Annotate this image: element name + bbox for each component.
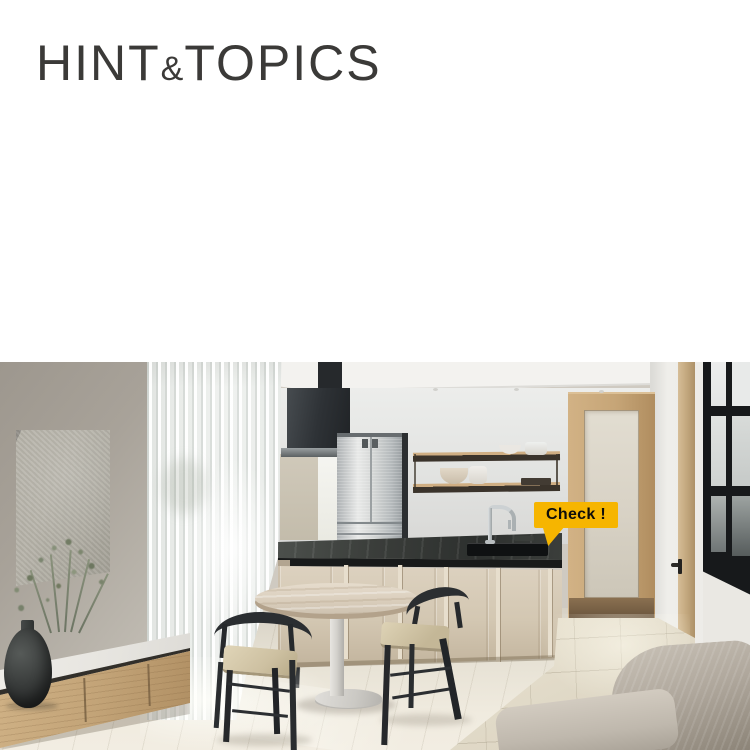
vase <box>4 628 52 708</box>
shelf-tray <box>521 478 551 485</box>
refrigerator-drawer-seam <box>337 522 407 524</box>
shelf-lidded-jar <box>525 442 547 455</box>
refrigerator <box>337 433 407 545</box>
refrigerator-drawer-seam <box>337 533 407 535</box>
shelf-support-rod <box>556 454 558 490</box>
logo-text-hint: HINT <box>36 35 161 91</box>
cabinet-stile <box>496 568 500 662</box>
ceiling-downlight <box>514 388 519 391</box>
refrigerator-top-edge <box>337 433 407 437</box>
logo-text-topics: TOPICS <box>184 35 381 91</box>
table-pedestal <box>330 608 344 696</box>
table-base-disc <box>315 689 382 708</box>
shelf-support-rod <box>414 454 416 492</box>
ceiling-downlight <box>433 388 438 391</box>
site-logo[interactable]: HINT&TOPICS <box>36 38 382 88</box>
window-pane <box>732 362 750 406</box>
kitchen-sink <box>467 543 548 556</box>
wood-door-trim <box>678 362 695 654</box>
hero-photo[interactable]: Check ! <box>0 362 750 750</box>
faucet-base <box>485 540 495 544</box>
left-chair-shadow <box>216 734 312 746</box>
window-pane <box>732 416 750 486</box>
refrigerator-door-seam <box>370 437 372 523</box>
backsplash-window-light <box>318 454 338 540</box>
window-pane <box>732 496 750 556</box>
backsplash-wall <box>280 454 318 540</box>
faucet-gooseneck <box>488 505 516 531</box>
refrigerator-handle <box>372 439 378 448</box>
shelf-jar <box>469 466 487 484</box>
faucet-stem <box>488 508 492 544</box>
window-pane <box>711 362 726 406</box>
refrigerator-side-panel <box>402 433 408 545</box>
range-hood-chimney <box>318 362 342 390</box>
plant-foliage <box>8 530 118 630</box>
counter-accessory <box>514 536 534 541</box>
door-handle-base <box>678 559 682 574</box>
logo-ampersand: & <box>161 50 185 88</box>
window-pane <box>711 496 726 552</box>
faucet-spout-tip <box>508 520 511 529</box>
check-callout-badge[interactable]: Check ! <box>534 502 618 528</box>
ceiling-downlight <box>599 390 604 393</box>
window-pane <box>711 416 726 486</box>
refrigerator-handle <box>362 439 368 448</box>
plant-shadow-on-curtain <box>162 458 206 514</box>
round-dining-tabletop <box>255 583 418 614</box>
